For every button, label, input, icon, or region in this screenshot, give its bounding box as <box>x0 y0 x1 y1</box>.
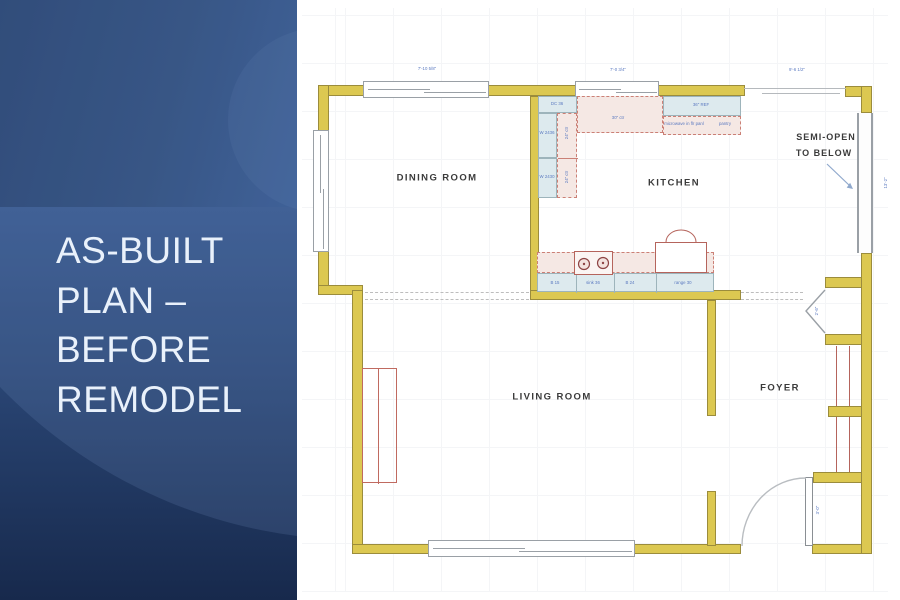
dim-label: 9'-6 1/2" <box>789 68 805 72</box>
room-label-dining: DINING ROOM <box>397 173 478 184</box>
cabinet-label: 36" REF <box>693 103 709 107</box>
sink-drain-icon <box>602 262 604 264</box>
plan-line-overlay <box>0 0 900 600</box>
range-vent-arc <box>666 230 696 242</box>
semi-open-arrow <box>827 164 850 186</box>
cabinet-label: pantry <box>719 122 731 126</box>
dim-label: 7'-10 5/8" <box>418 67 436 71</box>
cabinet-label: W 2430 <box>540 175 555 179</box>
cabinet-label: sink 36 <box>586 281 600 285</box>
dim-label: 2'-6" <box>815 307 819 316</box>
cabinet-label: 30" ctr <box>612 116 624 120</box>
sink-drain-icon <box>583 263 585 265</box>
room-label-living: LIVING ROOM <box>512 392 591 403</box>
cabinet-label: range 30 <box>674 281 691 285</box>
dim-label: 3'-0" <box>816 506 820 515</box>
dim-label: 7'-0 3/4" <box>610 68 626 72</box>
cabinet-label: B 24 <box>626 281 635 285</box>
room-label-foyer: FOYER <box>760 383 800 394</box>
cabinet-label: W 2436 <box>540 131 555 135</box>
dim-label: 13'-2" <box>884 177 888 188</box>
cabinet-label: DC 36 <box>551 102 563 106</box>
cabinet-label: 24" ctr <box>565 127 569 139</box>
semi-open-note-line2: TO BELOW <box>796 145 852 161</box>
front-door-swing-arc <box>742 478 806 546</box>
semi-open-note-line1: SEMI-OPEN <box>796 129 856 145</box>
cabinet-label: microwave in flr panl <box>664 122 704 126</box>
presentation-slide: AS-BUILT PLAN – BEFORE REMODEL <box>0 0 900 600</box>
cabinet-label: 24" ctr <box>565 171 569 183</box>
cabinet-label: B 15 <box>551 281 560 285</box>
room-label-kitchen: KITCHEN <box>648 178 700 189</box>
floor-plan: DINING ROOM KITCHEN LIVING ROOM FOYER SE… <box>0 0 900 600</box>
